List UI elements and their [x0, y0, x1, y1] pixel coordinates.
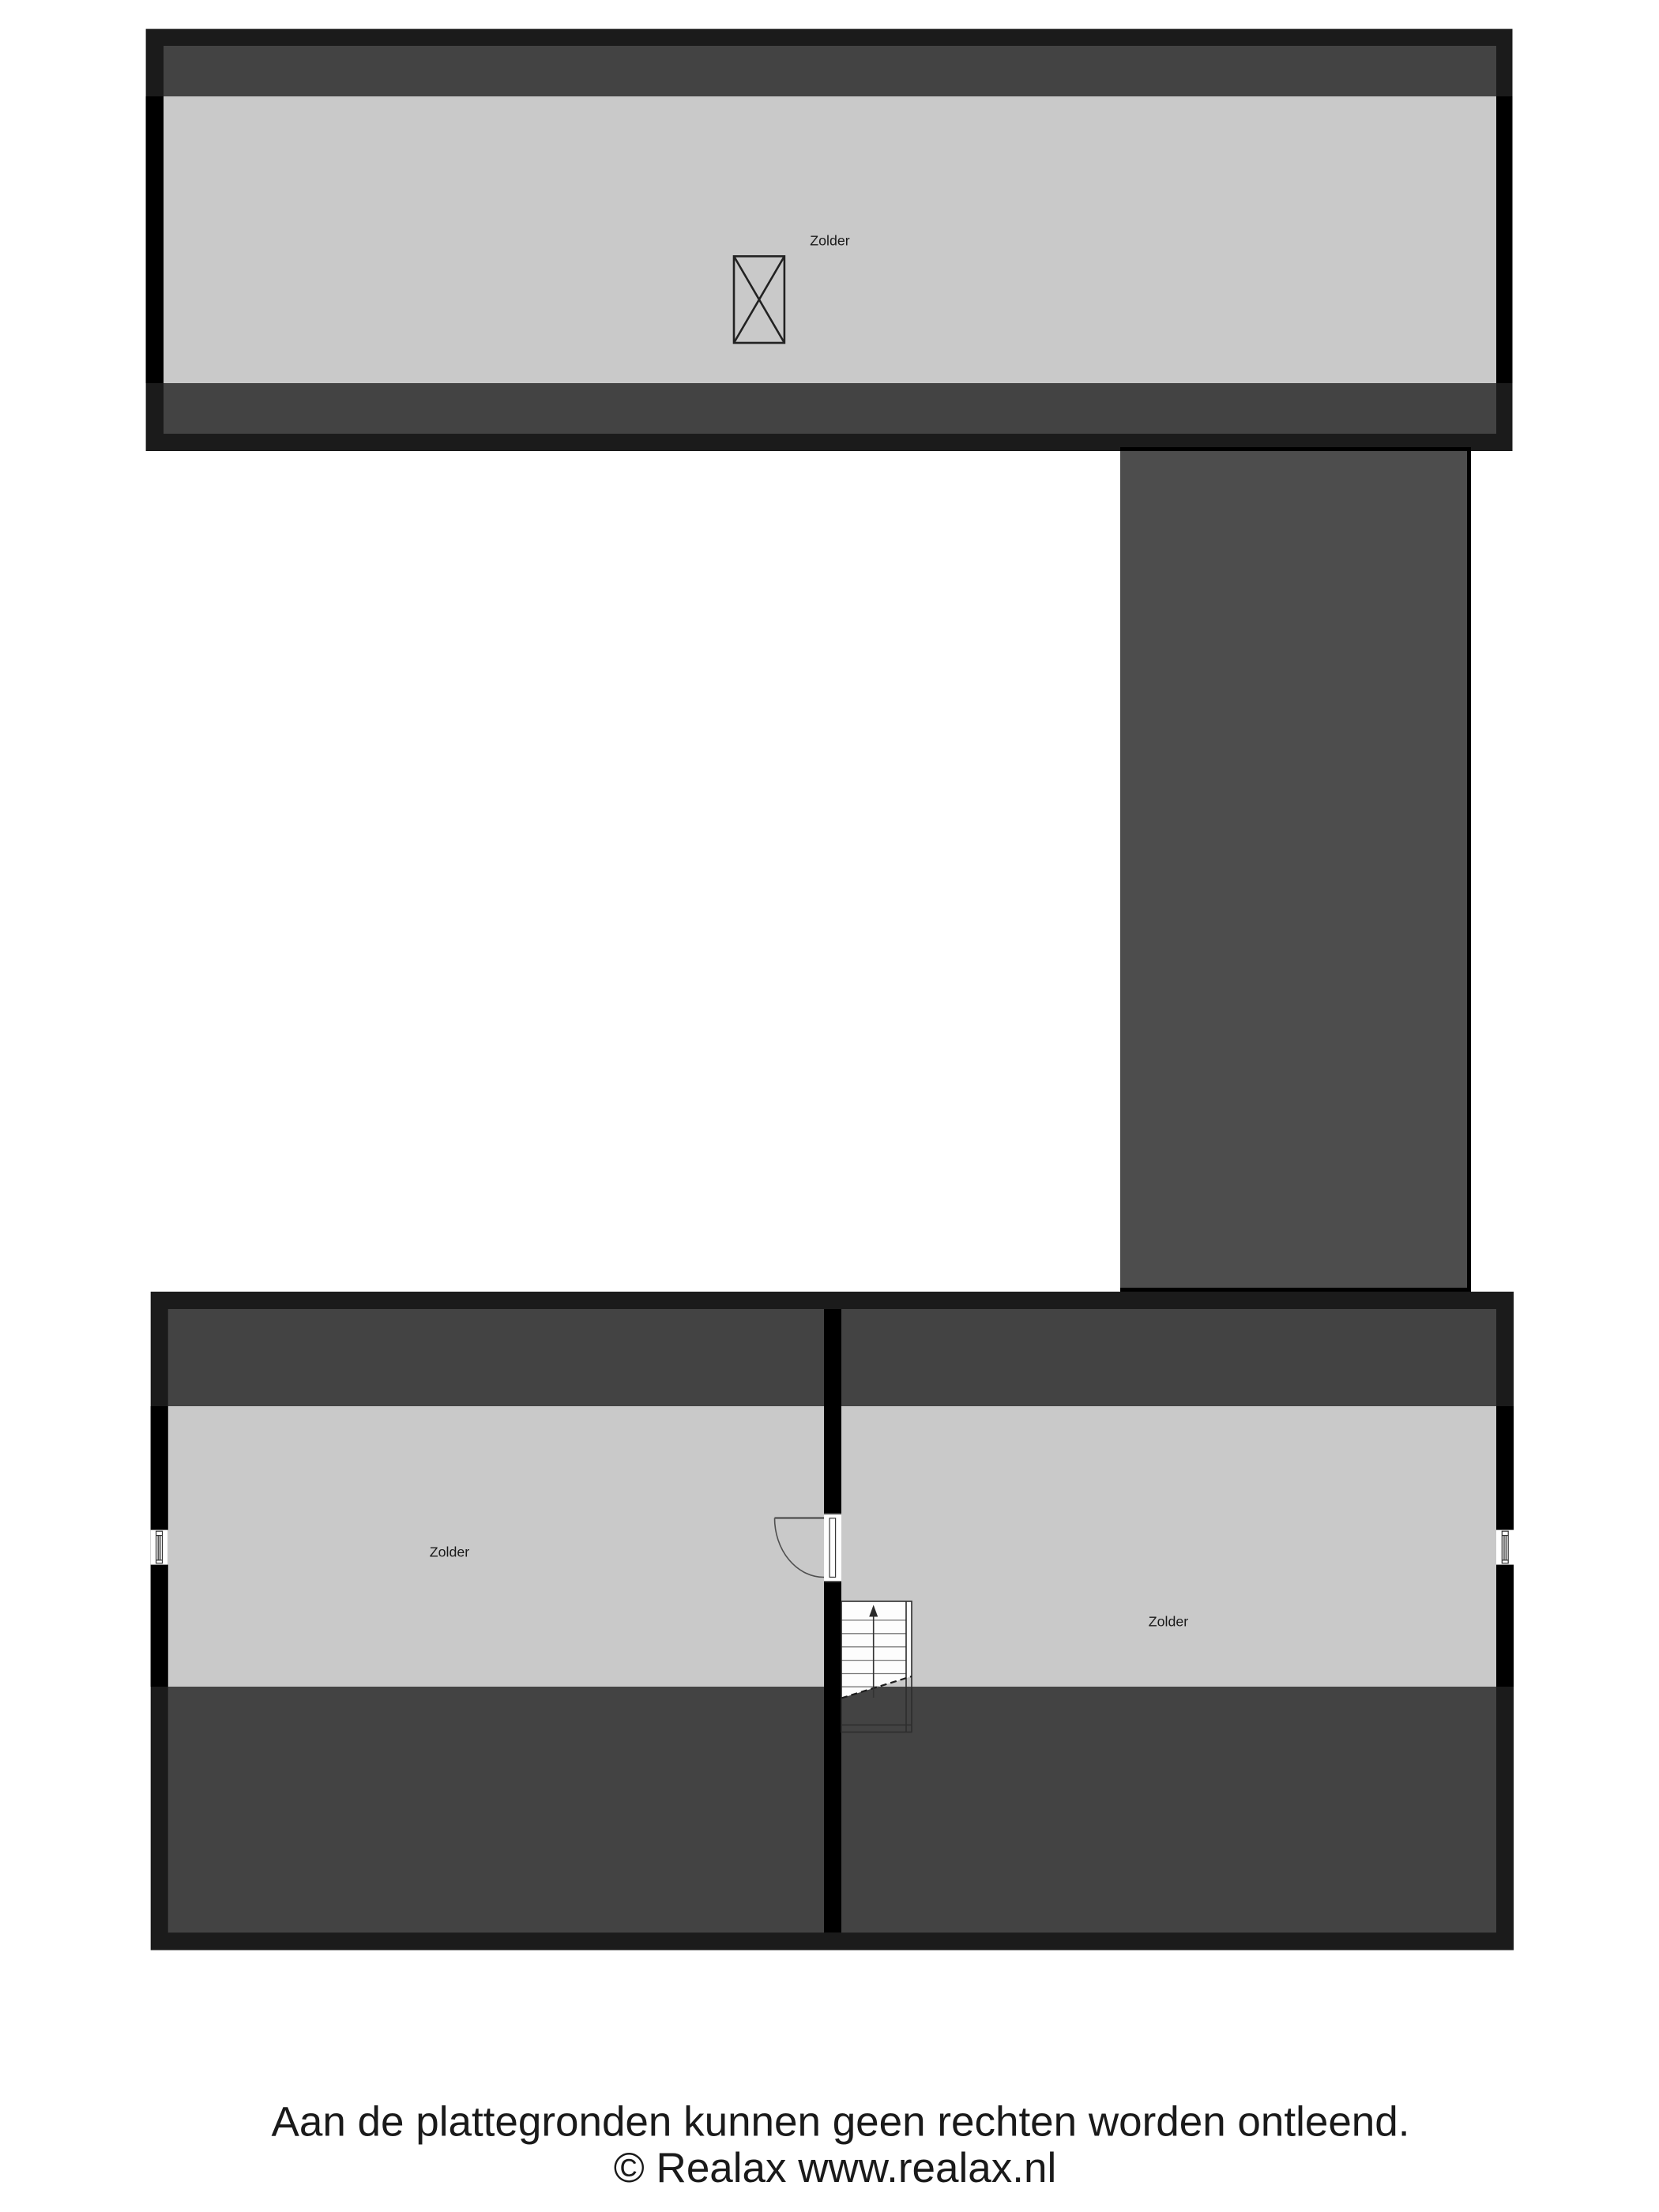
svg-text:Aan de plattegronden kunnen ge: Aan de plattegronden kunnen geen rechten… [272, 2099, 1410, 2146]
svg-text:Zolder: Zolder [430, 1544, 469, 1560]
svg-text:© Realax www.realax.nl: © Realax www.realax.nl [614, 2145, 1056, 2191]
svg-text:Zolder: Zolder [1149, 1613, 1188, 1629]
svg-text:Zolder: Zolder [810, 233, 849, 249]
